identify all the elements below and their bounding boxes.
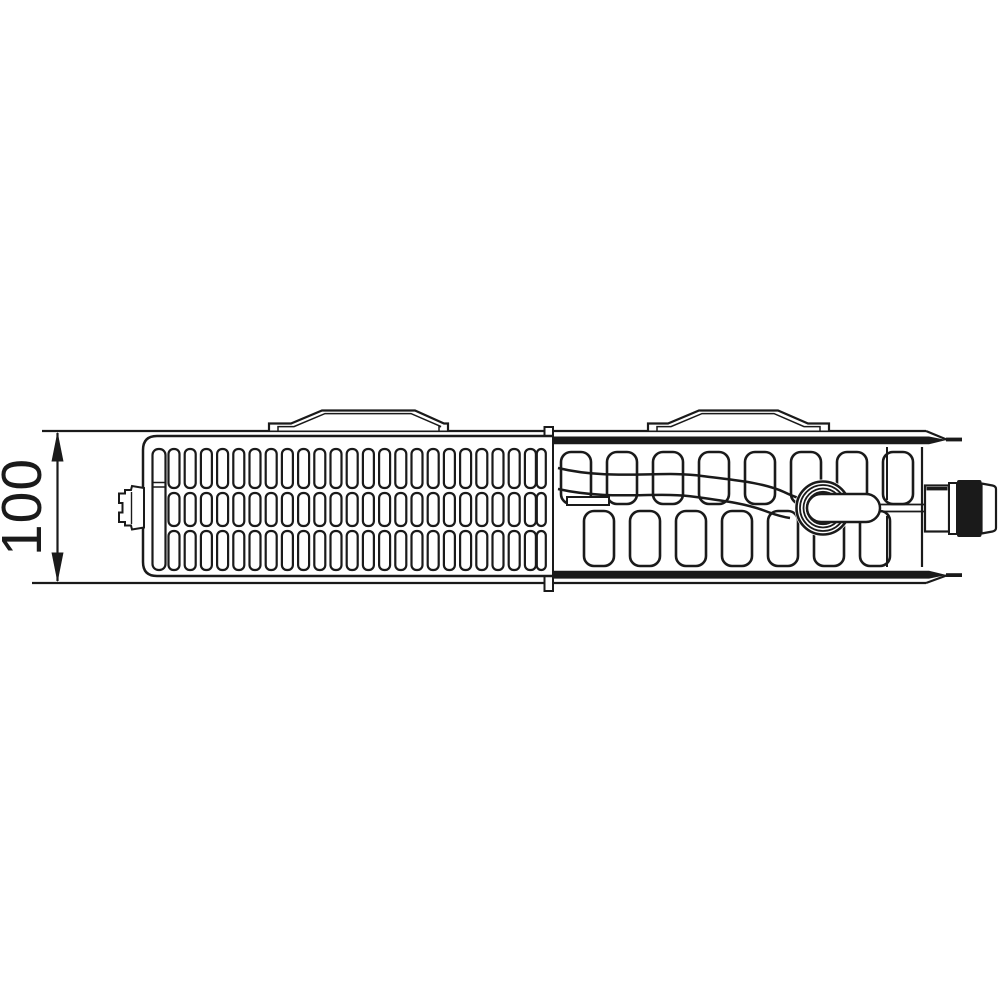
dimension-arrow-up-icon [52, 432, 64, 462]
dimension-value-label: 100 [0, 458, 54, 556]
convector-fin-lower [768, 511, 798, 566]
bottom-panel-cut-band [553, 571, 947, 579]
bottom-edge-stub [946, 573, 962, 577]
valve-tail-pipe [880, 505, 925, 512]
convector-fin-upper [745, 452, 775, 504]
valve-spindle-tube [807, 494, 880, 522]
convector-fin-lower [584, 511, 614, 566]
convector-fin-lower [722, 511, 752, 566]
top-edge-stub [946, 438, 962, 442]
dimension-annotation: 100 [0, 432, 64, 583]
wall-bracket-right [648, 411, 829, 431]
radiator-grille-section [119, 427, 553, 591]
radiator-cross-section-diagram: 100 [0, 0, 1000, 1000]
connection-nipple [925, 486, 949, 532]
union-nut-black [957, 480, 982, 537]
convector-fin-lower [676, 511, 706, 566]
convector-fin-lower [630, 511, 660, 566]
valve-tail-connection [925, 480, 996, 537]
nipple-thread-shading [927, 487, 948, 490]
radiator-cutaway-section [553, 437, 996, 579]
distribution-plate [567, 497, 609, 505]
wall-bracket-left [269, 411, 448, 431]
top-panel-cut-band [553, 437, 947, 445]
connection-collar [949, 483, 957, 534]
radiator-technical-drawing-page: 100 [0, 0, 1000, 1000]
drawing-root: 100 [0, 411, 996, 592]
end-cap [982, 484, 997, 534]
